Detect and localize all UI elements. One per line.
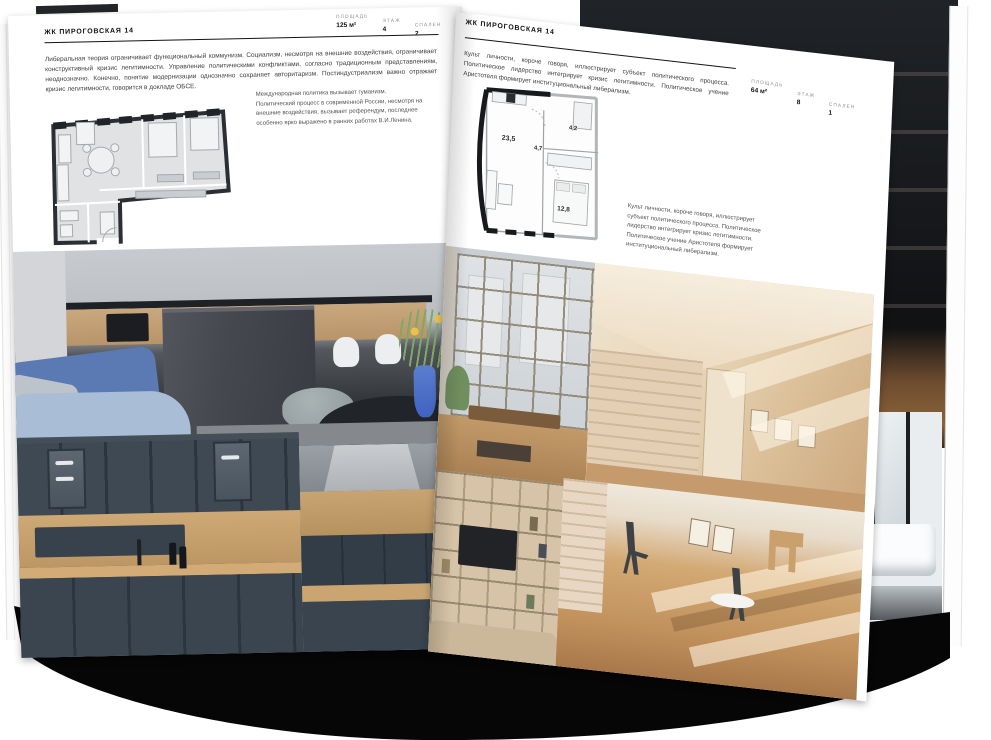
dishes-shape [55,461,73,465]
blue-vase-shape [413,365,436,417]
wall-shape [13,251,68,372]
plant-shape [526,594,535,609]
brick-column-shape [558,478,607,613]
bottle-shape [169,543,176,565]
room-area-bath: 4,2 [569,125,578,132]
dishes-shape [221,455,239,459]
room-area-hall: 4,7 [534,145,543,152]
stat-label: ЭТАЖ [797,92,815,99]
left-page-caption: Международная политика вызывает гуманизм… [256,87,425,129]
range-hood-shape [323,443,420,491]
island-base-shape [302,599,431,652]
stat-floor: ЭТАЖ 8 [796,92,815,115]
blue-kitchen-cabinets-photo [17,432,304,658]
right-page-stats: ПЛОЩАДЬ 64 м² ЭТАЖ 8 СПАЛЕН 1 [736,78,856,119]
books-shape [529,516,538,531]
white-chair-shape [375,334,402,365]
dark-chair-shape [618,521,650,576]
right-page-title: ЖК ПИРОГОВСКАЯ 14 [465,19,554,36]
header-divider [45,34,439,44]
stat-bedrooms: СПАЛЕН 1 [828,103,855,120]
stat-area: ПЛОЩАДЬ 64 м² [750,80,783,112]
leaning-frame-shape [688,518,711,547]
room-area-bedroom: 12,8 [557,205,570,213]
floor-plan-125m2 [38,97,243,253]
stat-label: ЭТАЖ [382,19,400,24]
right-page: ЖК ПИРОГОВСКАЯ 14 Культ личности, короче… [428,12,894,701]
kitchen-living-room-photo [13,242,471,451]
floor-plan-64m2: 23,5 4,7 4,2 12,8 [460,76,618,253]
left-page: ЖК ПИРОГОВСКАЯ 14 ПЛОЩАДЬ 125 м² ЭТАЖ 4 … [8,6,475,657]
stat-value: 125 м² [336,21,368,29]
left-page-title: ЖК ПИРОГОВСКАЯ 14 [44,27,134,36]
books-shape [538,544,547,559]
dishes-shape [56,477,74,481]
lower-cabinets-shape [20,573,304,658]
white-chair-shape [333,337,360,368]
oven-shape [106,313,149,342]
tv-shape [458,524,518,571]
stat-value: 64 м² [751,87,783,98]
bottle-shape [179,546,186,568]
stat-value: 4 [383,26,401,33]
leaning-frame-shape [712,525,735,554]
dark-splash-panel-shape [35,524,186,557]
stat-value: 8 [797,99,815,108]
glass-cabinet-shape [213,441,252,502]
magazine-mockup-scene: ЖК ПИРОГОВСКАЯ 14 ПЛОЩАДЬ 125 м² ЭТАЖ 4 … [0,0,991,740]
stat-value: 1 [828,110,855,120]
room-area-living: 23,5 [502,135,516,144]
stat-label: ПЛОЩАДЬ [336,14,368,20]
right-page-caption: Культ личности, короче говоря, иллюстрир… [626,202,776,267]
sunlit-room-photo [556,478,865,700]
faucet-shape [137,539,142,565]
